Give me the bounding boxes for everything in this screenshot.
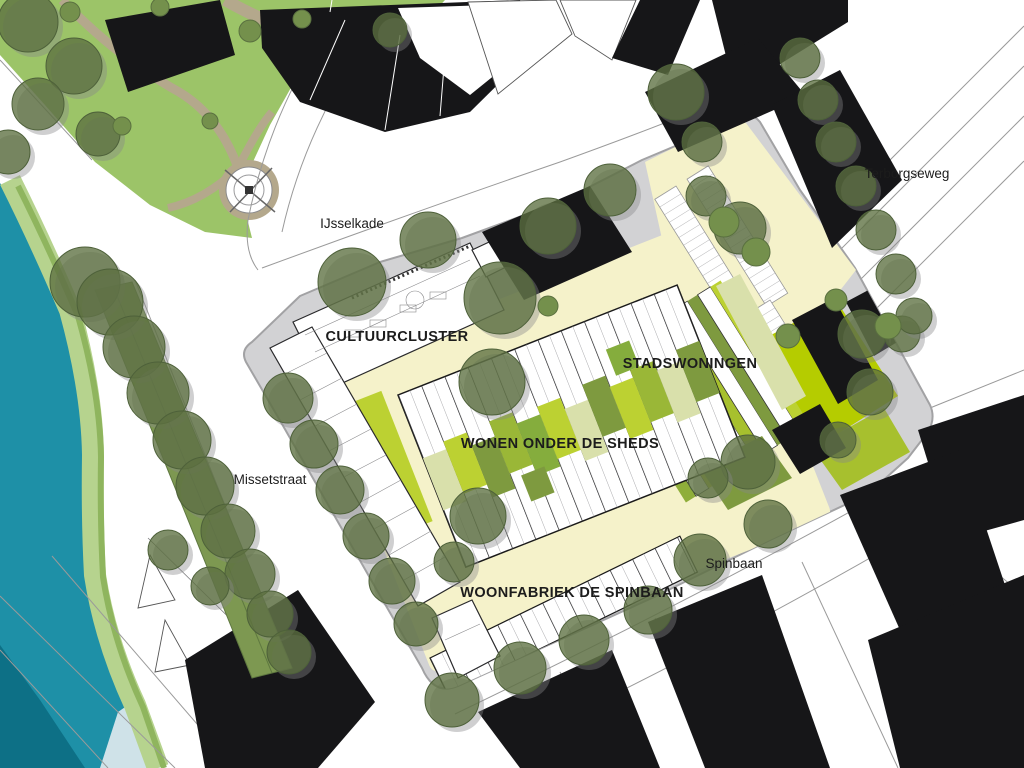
- tree-icon: [876, 254, 916, 294]
- tree-icon: [559, 615, 609, 665]
- label-stadswoningen: STADSWONINGEN: [623, 356, 758, 372]
- label-terborgseweg: Terborgseweg: [865, 166, 950, 181]
- tree-icon: [875, 313, 901, 339]
- tree-icon: [459, 349, 525, 415]
- tree-icon: [896, 298, 932, 334]
- tree-icon: [776, 324, 800, 348]
- tree-icon: [318, 248, 386, 316]
- tree-icon: [12, 78, 64, 130]
- tree-icon: [373, 13, 407, 47]
- tree-icon: [267, 630, 311, 674]
- label-missetstraat: Missetstraat: [234, 472, 307, 487]
- tree-icon: [343, 513, 389, 559]
- tree-icon: [290, 420, 338, 468]
- tree-icon: [538, 296, 558, 316]
- tree-icon: [394, 602, 438, 646]
- tree-icon: [76, 112, 120, 156]
- tree-icon: [688, 458, 728, 498]
- tree-icon: [239, 20, 261, 42]
- tree-icon: [191, 567, 229, 605]
- tree-icon: [316, 466, 364, 514]
- tree-icon: [494, 642, 546, 694]
- tree-icon: [450, 488, 506, 544]
- label-woonfabriek-de-spinbaan: WOONFABRIEK DE SPINBAAN: [460, 585, 684, 601]
- tree-icon: [202, 113, 218, 129]
- tree-icon: [584, 164, 636, 216]
- tree-icon: [847, 369, 893, 415]
- tree-icon: [709, 207, 739, 237]
- tree-icon: [293, 10, 311, 28]
- tree-icon: [434, 542, 474, 582]
- tree-icon: [60, 2, 80, 22]
- tree-icon: [369, 558, 415, 604]
- tree-icon: [148, 530, 188, 570]
- site-plan-canvas: Terborgseweg IJsselkade Missetstraat Spi…: [0, 0, 1024, 768]
- tree-icon: [816, 122, 856, 162]
- label-wonen-onder-de-sheds: WONEN ONDER DE SHEDS: [461, 436, 659, 452]
- park-plaza: [219, 160, 279, 220]
- tree-icon: [113, 117, 131, 135]
- tree-icon: [798, 80, 838, 120]
- site-plan-map: Terborgseweg IJsselkade Missetstraat Spi…: [0, 0, 1024, 768]
- tree-icon: [825, 289, 847, 311]
- tree-icon: [742, 238, 770, 266]
- label-spinbaan: Spinbaan: [705, 556, 762, 571]
- tree-icon: [520, 198, 576, 254]
- tree-icon: [820, 422, 856, 458]
- tree-icon: [425, 673, 479, 727]
- tree-icon: [400, 212, 456, 268]
- label-ijsselkade: IJsselkade: [320, 216, 384, 231]
- tree-icon: [780, 38, 820, 78]
- tree-icon: [151, 0, 169, 16]
- tree-icon: [682, 122, 722, 162]
- tree-icon: [464, 262, 536, 334]
- tree-icon: [263, 373, 313, 423]
- label-cultuurcluster: CULTUURCLUSTER: [325, 329, 468, 345]
- tree-icon: [856, 210, 896, 250]
- tree-icon: [744, 500, 792, 548]
- tree-icon: [648, 64, 704, 120]
